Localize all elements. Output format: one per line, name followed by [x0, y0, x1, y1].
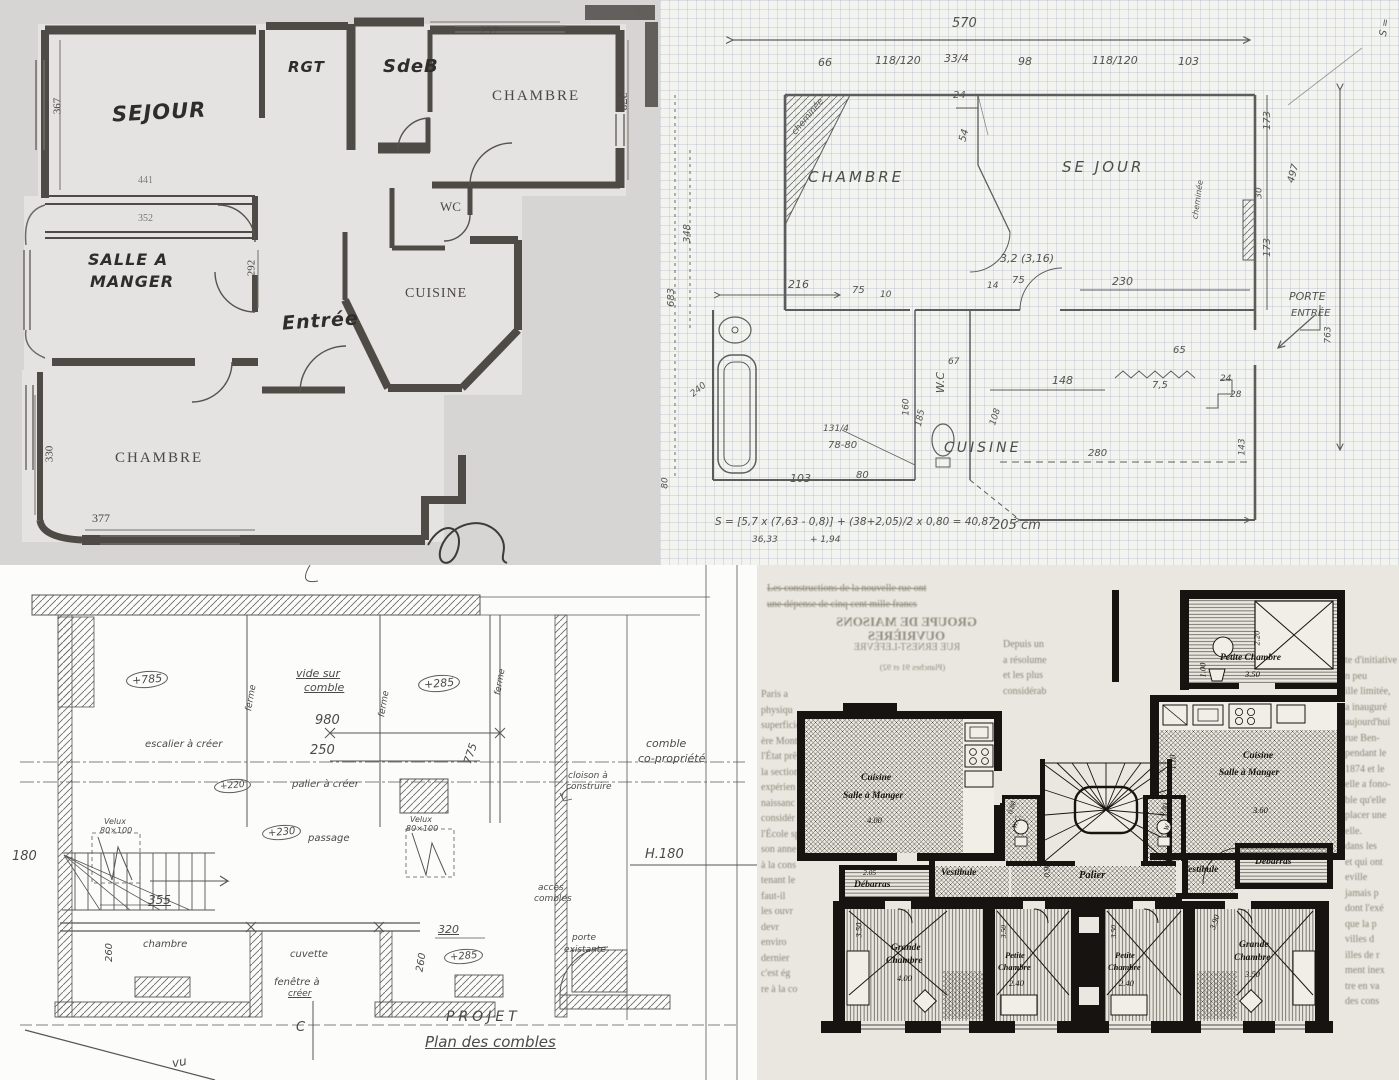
room-label-cuisine: CUISINE	[405, 286, 467, 301]
label-fenetre-2: créer	[288, 989, 311, 999]
dim-32-316: 3,2 (3,16)	[1000, 252, 1054, 265]
room-label-rgt: RGT	[288, 58, 325, 76]
caption-planches: (Planches 91 et 92)	[855, 663, 970, 672]
dim-240-right: 2.40	[1119, 978, 1134, 988]
title-plan-des-combles: Plan des combles	[425, 1033, 556, 1051]
dim-350-top: 3.50	[1245, 669, 1260, 679]
dim-118-120-a: 118/120	[875, 54, 921, 67]
room-label-petite-chambre-top: Petite Chambre	[1220, 653, 1281, 663]
dim-240-left: 2.40	[1009, 978, 1024, 988]
dim-230: 230	[1112, 275, 1133, 288]
label-entree: ENTRÉE	[1291, 308, 1331, 319]
room-label-grande-left-1: Grande	[891, 943, 921, 953]
dim-24: 24	[953, 90, 966, 101]
dim-220: 2.20	[1251, 631, 1261, 646]
dim-205cm: 205 cm	[992, 518, 1041, 533]
label-cloison-2: construire	[566, 782, 612, 792]
room-label-petite-right-1: Petite	[1115, 950, 1135, 960]
dim-400-gc-left: 4.00	[897, 973, 912, 983]
subhead-mirrored: RUE ERNEST-LEFÈVRE	[842, 643, 972, 654]
label-projet: PROJET	[446, 1009, 521, 1025]
dim-090: 0.90	[1041, 863, 1051, 878]
dim-320: 320	[438, 923, 459, 936]
dim-103-b: 103	[790, 472, 811, 485]
dim-348: 348	[682, 224, 693, 243]
room-label-sdb: SdeB	[383, 56, 439, 77]
dim-160: 160	[902, 398, 912, 415]
note-vu: vu	[171, 1054, 188, 1070]
room-label-cuisine-left: Cuisine	[861, 773, 891, 783]
dim-148: 148	[1052, 374, 1073, 387]
room-label-sejour: SEJOUR	[111, 98, 206, 127]
dim-260-a: 260	[104, 943, 115, 962]
label-escalier-a-creer: escalier à créer	[145, 739, 222, 750]
room-label-chambre: chambre	[143, 939, 187, 950]
formula-sub-1: 36,33	[752, 535, 778, 545]
dim-78-80: 78-80	[828, 440, 857, 451]
room-label-vestibule-right: Vestibule	[1183, 865, 1218, 875]
room-label-wc: W.C	[934, 372, 947, 393]
label-comble-copro-1: comble	[646, 737, 686, 750]
room-label-petite-right-2: Chambre	[1108, 962, 1141, 972]
dim-350-gc-left: 3.50	[853, 923, 863, 938]
dim-80-left: 80	[661, 477, 671, 488]
label-passage: passage	[308, 833, 350, 844]
dim-257: 257	[480, 24, 498, 37]
label-h180: H.180	[645, 847, 684, 862]
dim-280: 280	[1088, 448, 1107, 459]
label-fenetre-1: fenêtre à	[274, 977, 320, 988]
dim-110-left: 1.10	[869, 707, 884, 717]
dim-80: 80	[856, 470, 869, 481]
room-label-salle-a-manger-2: MANGER	[90, 272, 174, 291]
dim-377: 377	[92, 512, 110, 525]
dim-683: 683	[666, 288, 677, 307]
room-label-petite-left-2: Chambre	[998, 962, 1031, 972]
label-velux-1-size: 80×100	[100, 826, 132, 835]
dim-143: 143	[1238, 438, 1248, 455]
label-comble: comble	[304, 681, 344, 694]
dim-total-570: 570	[952, 16, 977, 31]
room-label-debarras-right: Débarras	[1255, 857, 1291, 867]
room-label-palier: Palier	[1079, 870, 1105, 881]
room-label-cuisine: CUISINE	[944, 440, 1022, 456]
label-porte-1: porte	[572, 933, 596, 943]
dim-278: 278	[617, 92, 630, 110]
room-label-grande-right-1: Grande	[1239, 940, 1269, 950]
dim-14: 14	[987, 281, 998, 291]
dim-33-4: 33/4	[944, 52, 969, 65]
area-formula: S = [5,7 x (7,63 - 0,8)] + (38+2,05)/2 x…	[715, 516, 995, 528]
label-vide-sur: vide sur	[296, 667, 340, 680]
room-label-cuisine-right: Cuisine	[1243, 751, 1273, 761]
label-porte: PORTE	[1289, 290, 1326, 303]
dim-350-gc-right: 3.50	[1245, 969, 1260, 979]
plan-pencil-attic-project: +785 vide sur comble +285 ferme ferme fe…	[0, 565, 757, 1080]
label-palier-a-creer: palier à créer	[292, 779, 359, 790]
label-acces-1: accès	[538, 883, 564, 893]
dim-7-5: 7,5	[1152, 380, 1168, 391]
dim-180: 180	[12, 849, 37, 864]
dim-131-4: 131/4	[823, 424, 849, 434]
room-label-petite-left-1: Petite	[1005, 950, 1025, 960]
dim-66: 66	[818, 56, 832, 69]
room-label-wc: WC	[440, 200, 461, 214]
room-label-sam-right: Salle à Manger	[1219, 768, 1279, 778]
room-label-sam-left: Salle à Manger	[843, 791, 903, 801]
room-label-sejour: SE JOUR	[1062, 158, 1144, 176]
section-mark-c: C	[296, 1020, 305, 1035]
room-label-grande-right-2: Chambre	[1234, 953, 1270, 963]
dim-24-b: 24	[1220, 374, 1231, 384]
dim-441: 441	[138, 176, 153, 187]
dim-173-a: 173	[1262, 111, 1273, 130]
dim-173-b: 173	[1262, 238, 1273, 257]
dim-980: 980	[315, 713, 340, 728]
room-label-grande-left-2: Chambre	[886, 956, 922, 966]
room-label-chambre-bottom: CHAMBRE	[115, 450, 203, 466]
dim-28: 28	[1230, 390, 1241, 400]
label-porte-2: existante	[564, 945, 606, 955]
dim-250: 250	[310, 743, 335, 758]
dim-103: 103	[1178, 55, 1199, 68]
dim-763: 763	[1324, 326, 1334, 343]
dim-67: 67	[948, 357, 959, 367]
dim-216: 216	[788, 278, 809, 291]
dim-352: 352	[138, 214, 153, 225]
label-velux-2-size: 80×100	[406, 824, 438, 833]
label-acces-2: combles	[534, 894, 572, 904]
headline-mirrored: GROUPE DE MAISONS OUVRIÈRES	[819, 615, 994, 643]
label-velux-1: Velux	[104, 817, 126, 826]
dim-350-pc-left: 3.50	[999, 925, 1008, 938]
dim-400-left: 4.00	[867, 815, 882, 825]
dim-110-right: 1.10	[1167, 755, 1177, 770]
room-label-chambre: CHAMBRE	[808, 168, 904, 186]
dim-10: 10	[880, 290, 891, 300]
dim-100: 1.00	[1197, 663, 1207, 678]
dim-355: 355	[148, 893, 171, 907]
dim-350-pc-right: 3.50	[1109, 925, 1118, 938]
label-velux-2: Velux	[410, 815, 432, 824]
plan-scan-apartment: SEJOUR RGT SdeB CHAMBRE 257 278 367 441 …	[0, 0, 660, 565]
dim-205: 2.05	[863, 868, 876, 877]
dim-292: 292	[246, 260, 258, 277]
dim-75-a: 75	[852, 285, 865, 296]
dim-360: 3.60	[1253, 805, 1268, 815]
formula-sub-2: + 1,94	[810, 535, 840, 545]
dim-118-120-b: 118/120	[1092, 54, 1138, 67]
dim-65: 65	[1173, 345, 1186, 356]
dim-367: 367	[52, 98, 64, 115]
room-label-salle-a-manger-1: SALLE A	[88, 250, 168, 269]
room-label-debarras-left: Débarras	[854, 880, 890, 890]
plan-sketch-graph-paper: 570 66 118/120 33/4 98 118/120 103 24 54…	[660, 0, 1399, 565]
label-cuvette: cuvette	[290, 949, 328, 960]
dim-75-b: 75	[1012, 275, 1025, 286]
floor-plan-collage: SEJOUR RGT SdeB CHAMBRE 257 278 367 441 …	[0, 0, 1399, 1080]
plan-print-maisons-ouvrieres: Les constructions de la nouvelle rue ont…	[757, 565, 1399, 1080]
room-label-vestibule-left: Vestibule	[941, 868, 976, 878]
dim-330: 330	[44, 446, 56, 463]
label-comble-copro-2: co-propriété	[638, 752, 705, 765]
label-cloison-1: cloison à	[568, 771, 608, 781]
dim-98: 98	[1018, 55, 1032, 68]
dim-30: 30	[1255, 187, 1265, 198]
plan-sketch-drawing	[660, 0, 1399, 565]
room-label-chambre-top: CHAMBRE	[492, 88, 580, 104]
